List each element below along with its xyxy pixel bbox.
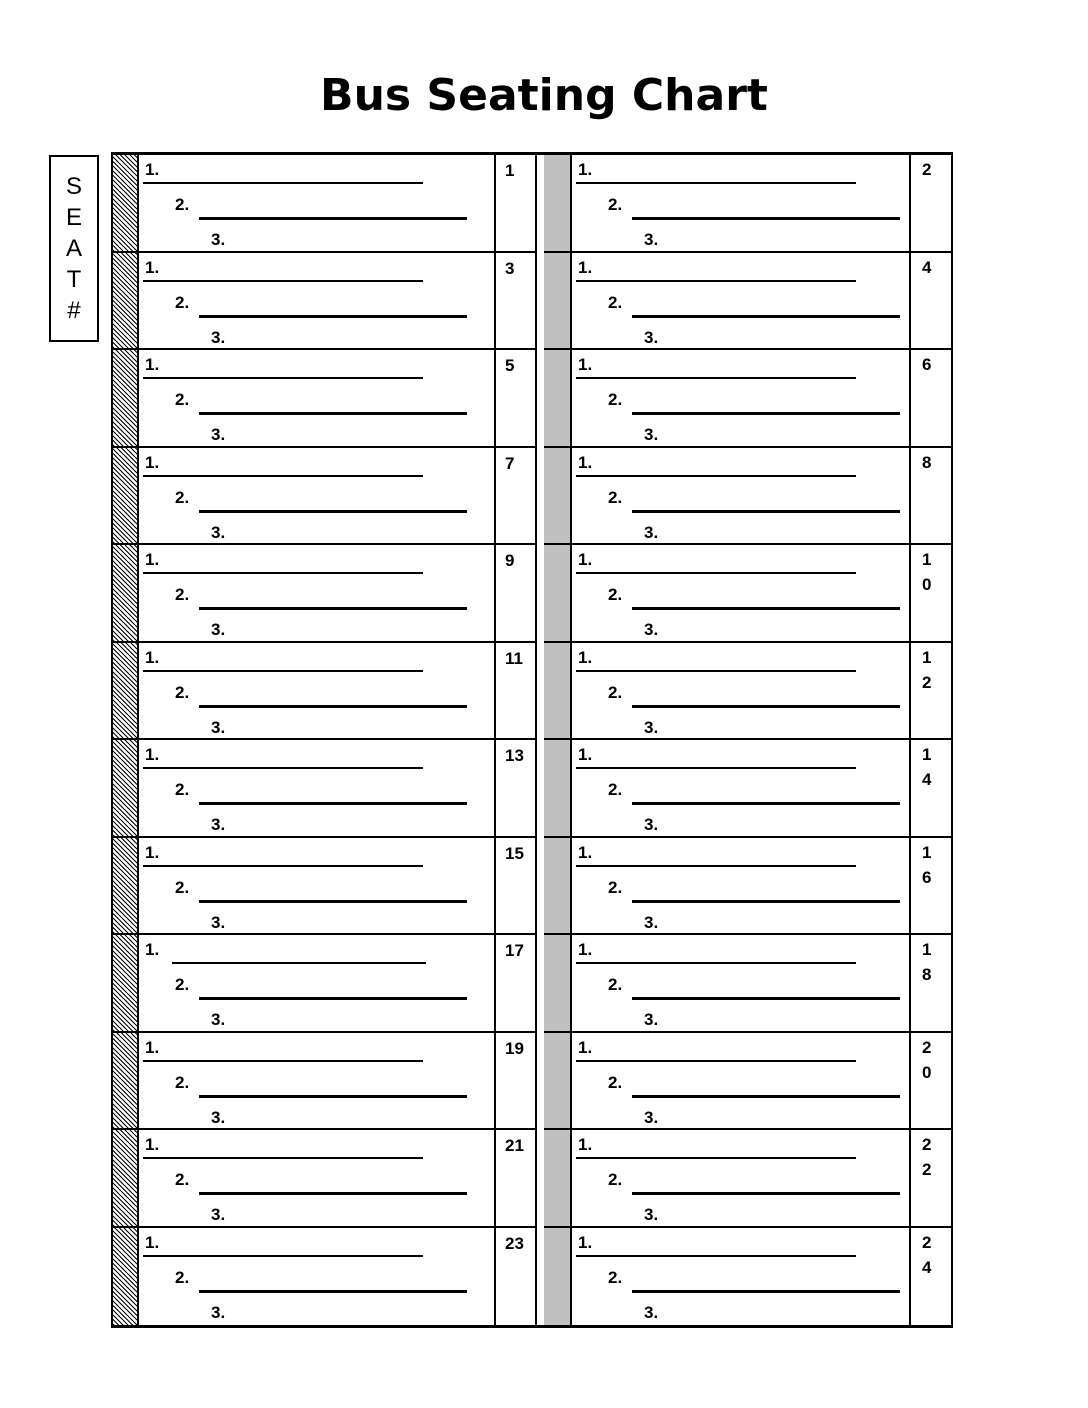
- window-hatch-strip: [113, 448, 139, 546]
- entry-label-1: 1.: [578, 745, 592, 765]
- seat-number-right: 20: [911, 1033, 951, 1131]
- aisle-strip: [544, 740, 570, 838]
- seat-entry-right: 1. 2. 3.: [570, 448, 911, 546]
- seat-entry-left: 1. 2. 3.: [139, 253, 496, 351]
- blank-line-2: [199, 412, 467, 415]
- seat-row: 1. 2. 3. 5 1. 2. 3. 6: [113, 350, 951, 448]
- seat-number-right: 24: [911, 1228, 951, 1326]
- blank-line-2: [632, 412, 900, 415]
- entry-label-1: 1.: [578, 1038, 592, 1058]
- seat-row: 1. 2. 3. 21 1. 2. 3. 22: [113, 1130, 951, 1228]
- entry-label-2: 2.: [608, 975, 622, 995]
- seat-entry-right: 1. 2. 3.: [570, 935, 911, 1033]
- window-hatch-strip: [113, 350, 139, 448]
- entry-label-2: 2.: [608, 1073, 622, 1093]
- entry-label-2: 2.: [175, 878, 189, 898]
- seat-number-left: 3: [496, 253, 537, 351]
- column-gap: [537, 253, 544, 351]
- entry-label-3: 3.: [211, 913, 225, 933]
- blank-line-1: [143, 865, 423, 867]
- blank-line-1: [576, 1060, 856, 1062]
- entry-label-1: 1.: [145, 745, 159, 765]
- entry-label-2: 2.: [608, 878, 622, 898]
- column-gap: [537, 448, 544, 546]
- entry-label-2: 2.: [608, 780, 622, 800]
- entry-label-2: 2.: [175, 683, 189, 703]
- entry-label-2: 2.: [175, 585, 189, 605]
- seat-number-right: 12: [911, 643, 951, 741]
- blank-line-1: [576, 475, 856, 477]
- entry-label-3: 3.: [644, 620, 658, 640]
- seat-entry-left: 1. 2. 3.: [139, 350, 496, 448]
- blank-line-2: [632, 1192, 900, 1195]
- entry-label-3: 3.: [644, 718, 658, 738]
- entry-label-2: 2.: [608, 585, 622, 605]
- seat-row: 1. 2. 3. 15 1. 2. 3. 16: [113, 838, 951, 936]
- seat-number-left: 21: [496, 1130, 537, 1228]
- seat-row: 1. 2. 3. 17 1. 2. 3. 18: [113, 935, 951, 1033]
- entry-label-1: 1.: [578, 550, 592, 570]
- blank-line-2: [632, 607, 900, 610]
- seat-header-letter: S: [66, 171, 82, 202]
- seat-entry-left: 1. 2. 3.: [139, 838, 496, 936]
- seat-entry-left: 1. 2. 3.: [139, 545, 496, 643]
- entry-label-1: 1.: [578, 258, 592, 278]
- blank-line-1: [143, 475, 423, 477]
- entry-label-2: 2.: [175, 390, 189, 410]
- seat-row: 1. 2. 3. 3 1. 2. 3. 4: [113, 253, 951, 351]
- blank-line-2: [632, 997, 900, 1000]
- seat-entry-right: 1. 2. 3.: [570, 350, 911, 448]
- blank-line-2: [199, 1290, 467, 1293]
- column-gap: [537, 838, 544, 936]
- seat-number-left: 19: [496, 1033, 537, 1131]
- column-gap: [537, 350, 544, 448]
- seat-number-header: S E A T #: [49, 155, 99, 342]
- entry-label-3: 3.: [211, 230, 225, 250]
- blank-line-1: [143, 1060, 423, 1062]
- seat-entry-left: 1. 2. 3.: [139, 935, 496, 1033]
- entry-label-2: 2.: [175, 1073, 189, 1093]
- blank-line-1: [172, 962, 426, 964]
- seat-row: 1. 2. 3. 9 1. 2. 3. 10: [113, 545, 951, 643]
- entry-label-3: 3.: [644, 1010, 658, 1030]
- blank-line-2: [199, 705, 467, 708]
- seat-entry-right: 1. 2. 3.: [570, 253, 911, 351]
- seat-entry-left: 1. 2. 3.: [139, 643, 496, 741]
- aisle-strip: [544, 1130, 570, 1228]
- blank-line-1: [576, 572, 856, 574]
- seat-header-letter: T: [67, 264, 82, 295]
- column-gap: [537, 155, 544, 253]
- seat-number-left: 1: [496, 155, 537, 253]
- entry-label-3: 3.: [211, 1303, 225, 1323]
- blank-line-2: [199, 1192, 467, 1195]
- aisle-strip: [544, 545, 570, 643]
- seat-header-letter: E: [66, 202, 82, 233]
- seat-number-left: 11: [496, 643, 537, 741]
- blank-line-1: [576, 670, 856, 672]
- entry-label-3: 3.: [211, 1205, 225, 1225]
- window-hatch-strip: [113, 838, 139, 936]
- seat-number-left: 5: [496, 350, 537, 448]
- seat-entry-right: 1. 2. 3.: [570, 740, 911, 838]
- entry-label-1: 1.: [145, 843, 159, 863]
- entry-label-1: 1.: [145, 160, 159, 180]
- entry-label-2: 2.: [175, 293, 189, 313]
- entry-label-1: 1.: [145, 258, 159, 278]
- blank-line-1: [576, 280, 856, 282]
- seat-entry-right: 1. 2. 3.: [570, 545, 911, 643]
- blank-line-1: [143, 280, 423, 282]
- blank-line-1: [143, 182, 423, 184]
- entry-label-3: 3.: [211, 1010, 225, 1030]
- blank-line-1: [576, 1255, 856, 1257]
- entry-label-3: 3.: [644, 425, 658, 445]
- entry-label-3: 3.: [644, 523, 658, 543]
- blank-line-2: [632, 217, 900, 220]
- seating-chart-table: 1. 2. 3. 1 1. 2. 3. 2 1. 2. 3. 3: [111, 152, 953, 1328]
- entry-label-3: 3.: [211, 620, 225, 640]
- entry-label-3: 3.: [644, 1108, 658, 1128]
- entry-label-3: 3.: [211, 425, 225, 445]
- entry-label-2: 2.: [608, 488, 622, 508]
- seat-entry-right: 1. 2. 3.: [570, 155, 911, 253]
- entry-label-3: 3.: [644, 1205, 658, 1225]
- blank-line-2: [199, 607, 467, 610]
- entry-label-1: 1.: [578, 355, 592, 375]
- entry-label-2: 2.: [608, 293, 622, 313]
- entry-label-1: 1.: [578, 843, 592, 863]
- column-gap: [537, 1130, 544, 1228]
- entry-label-3: 3.: [644, 913, 658, 933]
- seat-number-right: 2: [911, 155, 951, 253]
- column-gap: [537, 545, 544, 643]
- blank-line-2: [632, 1290, 900, 1293]
- entry-label-1: 1.: [578, 453, 592, 473]
- blank-line-1: [143, 377, 423, 379]
- aisle-strip: [544, 935, 570, 1033]
- aisle-strip: [544, 155, 570, 253]
- blank-line-2: [199, 315, 467, 318]
- entry-label-2: 2.: [175, 1170, 189, 1190]
- aisle-strip: [544, 1033, 570, 1131]
- blank-line-1: [576, 865, 856, 867]
- blank-line-1: [143, 572, 423, 574]
- seat-entry-left: 1. 2. 3.: [139, 448, 496, 546]
- blank-line-2: [199, 997, 467, 1000]
- column-gap: [537, 740, 544, 838]
- window-hatch-strip: [113, 155, 139, 253]
- seat-number-left: 13: [496, 740, 537, 838]
- seat-number-left: 9: [496, 545, 537, 643]
- seat-number-right: 4: [911, 253, 951, 351]
- seat-entry-right: 1. 2. 3.: [570, 643, 911, 741]
- window-hatch-strip: [113, 935, 139, 1033]
- seat-row: 1. 2. 3. 19 1. 2. 3. 20: [113, 1033, 951, 1131]
- seat-entry-left: 1. 2. 3.: [139, 740, 496, 838]
- entry-label-2: 2.: [175, 1268, 189, 1288]
- column-gap: [537, 1033, 544, 1131]
- entry-label-3: 3.: [211, 1108, 225, 1128]
- window-hatch-strip: [113, 545, 139, 643]
- blank-line-2: [632, 900, 900, 903]
- aisle-strip: [544, 643, 570, 741]
- entry-label-3: 3.: [644, 230, 658, 250]
- entry-label-2: 2.: [608, 1170, 622, 1190]
- entry-label-2: 2.: [608, 195, 622, 215]
- seat-entry-left: 1. 2. 3.: [139, 1228, 496, 1326]
- seat-entry-left: 1. 2. 3.: [139, 1033, 496, 1131]
- blank-line-1: [576, 182, 856, 184]
- seat-entry-left: 1. 2. 3.: [139, 155, 496, 253]
- blank-line-1: [143, 1157, 423, 1159]
- seat-header-letter: A: [66, 233, 82, 264]
- window-hatch-strip: [113, 253, 139, 351]
- column-gap: [537, 1228, 544, 1326]
- entry-label-2: 2.: [608, 1268, 622, 1288]
- blank-line-2: [632, 315, 900, 318]
- seat-number-right: 22: [911, 1130, 951, 1228]
- seat-row: 1. 2. 3. 1 1. 2. 3. 2: [113, 155, 951, 253]
- seat-entry-right: 1. 2. 3.: [570, 1130, 911, 1228]
- seat-number-right: 16: [911, 838, 951, 936]
- entry-label-1: 1.: [145, 1135, 159, 1155]
- blank-line-1: [576, 962, 856, 964]
- entry-label-3: 3.: [211, 523, 225, 543]
- window-hatch-strip: [113, 1130, 139, 1228]
- entry-label-1: 1.: [145, 1233, 159, 1253]
- seat-number-right: 14: [911, 740, 951, 838]
- blank-line-2: [632, 705, 900, 708]
- aisle-strip: [544, 838, 570, 936]
- blank-line-2: [632, 802, 900, 805]
- entry-label-3: 3.: [211, 718, 225, 738]
- window-hatch-strip: [113, 1033, 139, 1131]
- entry-label-3: 3.: [211, 815, 225, 835]
- seat-number-left: 17: [496, 935, 537, 1033]
- blank-line-2: [199, 900, 467, 903]
- blank-line-1: [576, 1157, 856, 1159]
- blank-line-2: [199, 510, 467, 513]
- entry-label-3: 3.: [644, 815, 658, 835]
- aisle-strip: [544, 253, 570, 351]
- entry-label-3: 3.: [644, 328, 658, 348]
- entry-label-2: 2.: [175, 780, 189, 800]
- aisle-strip: [544, 350, 570, 448]
- seat-number-left: 7: [496, 448, 537, 546]
- blank-line-2: [632, 1095, 900, 1098]
- aisle-strip: [544, 1228, 570, 1326]
- blank-line-2: [199, 1095, 467, 1098]
- seat-entry-right: 1. 2. 3.: [570, 838, 911, 936]
- blank-line-1: [576, 377, 856, 379]
- blank-line-1: [143, 767, 423, 769]
- seat-number-right: 6: [911, 350, 951, 448]
- entry-label-1: 1.: [578, 940, 592, 960]
- seat-row: 1. 2. 3. 7 1. 2. 3. 8: [113, 448, 951, 546]
- blank-line-2: [199, 802, 467, 805]
- worksheet-page: Bus Seating Chart S E A T # 1. 2. 3. 1 1…: [0, 0, 1088, 1408]
- seat-number-right: 10: [911, 545, 951, 643]
- entry-label-2: 2.: [608, 390, 622, 410]
- seat-number-right: 8: [911, 448, 951, 546]
- seat-header-letter: #: [67, 295, 80, 326]
- entry-label-1: 1.: [145, 1038, 159, 1058]
- entry-label-1: 1.: [145, 550, 159, 570]
- entry-label-1: 1.: [145, 648, 159, 668]
- entry-label-2: 2.: [175, 195, 189, 215]
- entry-label-1: 1.: [578, 160, 592, 180]
- seat-number-right: 18: [911, 935, 951, 1033]
- entry-label-1: 1.: [145, 355, 159, 375]
- seat-number-left: 23: [496, 1228, 537, 1326]
- seat-entry-right: 1. 2. 3.: [570, 1033, 911, 1131]
- entry-label-2: 2.: [608, 683, 622, 703]
- blank-line-2: [632, 510, 900, 513]
- entry-label-3: 3.: [644, 1303, 658, 1323]
- entry-label-1: 1.: [145, 453, 159, 473]
- page-title: Bus Seating Chart: [0, 70, 1088, 121]
- seat-entry-right: 1. 2. 3.: [570, 1228, 911, 1326]
- blank-line-1: [143, 1255, 423, 1257]
- entry-label-1: 1.: [145, 940, 159, 960]
- seat-row: 1. 2. 3. 23 1. 2. 3. 24: [113, 1228, 951, 1326]
- window-hatch-strip: [113, 1228, 139, 1326]
- seat-number-left: 15: [496, 838, 537, 936]
- entry-label-2: 2.: [175, 975, 189, 995]
- blank-line-1: [143, 670, 423, 672]
- aisle-strip: [544, 448, 570, 546]
- entry-label-1: 1.: [578, 1135, 592, 1155]
- blank-line-1: [576, 767, 856, 769]
- entry-label-1: 1.: [578, 648, 592, 668]
- seat-entry-left: 1. 2. 3.: [139, 1130, 496, 1228]
- blank-line-2: [199, 217, 467, 220]
- entry-label-2: 2.: [175, 488, 189, 508]
- window-hatch-strip: [113, 643, 139, 741]
- seat-row: 1. 2. 3. 11 1. 2. 3. 12: [113, 643, 951, 741]
- column-gap: [537, 935, 544, 1033]
- entry-label-3: 3.: [211, 328, 225, 348]
- window-hatch-strip: [113, 740, 139, 838]
- entry-label-1: 1.: [578, 1233, 592, 1253]
- seat-row: 1. 2. 3. 13 1. 2. 3. 14: [113, 740, 951, 838]
- column-gap: [537, 643, 544, 741]
